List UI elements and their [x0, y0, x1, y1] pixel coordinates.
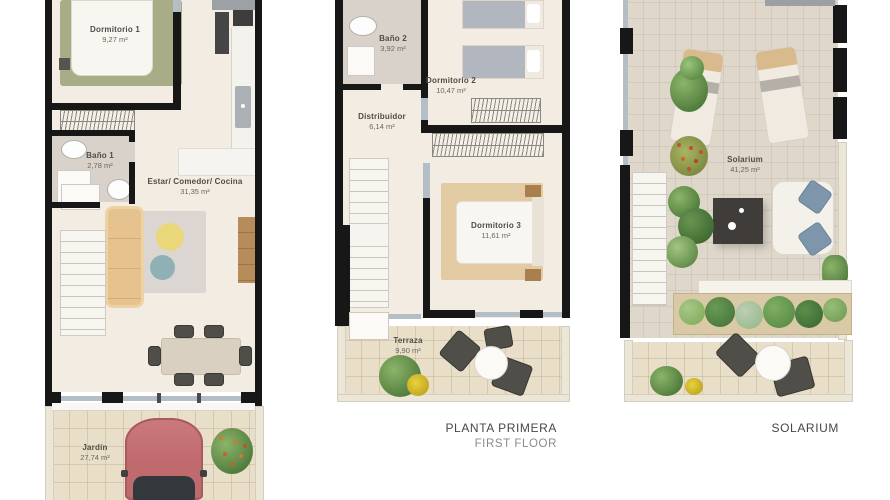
sol-stairs: [632, 172, 667, 306]
sol-table-dot: [739, 208, 744, 213]
gf-wardrobe: [60, 110, 135, 132]
gf-wall-right: [255, 0, 262, 398]
room-label-dormitorio2: Dormitorio 2 10,47 m²: [426, 76, 476, 95]
gf-dining-chair: [148, 346, 161, 366]
ff-terrace-wall-left: [337, 326, 346, 402]
gf-wall-bath-right: [129, 162, 135, 204]
gf-dining-chair: [239, 346, 252, 366]
gf-kitchen-sink-tap: [241, 104, 245, 108]
sol-lounger-cushion: [755, 46, 797, 70]
ff-terrace-wall-right: [561, 326, 570, 402]
ff-door-dorm2: [421, 98, 428, 120]
sol-bush: [666, 236, 698, 268]
gf-car-windshield: [133, 476, 195, 500]
sol-terrace-wall-bottom: [624, 394, 853, 402]
ff-wall-left-thick: [335, 225, 350, 326]
gf-stairs: [60, 230, 106, 336]
gf-kitchen-appliance: [233, 10, 253, 26]
first-floor-plan: Baño 2 3,92 m² Dormitorio 2 10,47 m² Dis…: [335, 0, 570, 400]
gf-garden-bush-flowers: [219, 436, 223, 440]
room-label-bano1: Baño 1 2,78 m²: [86, 151, 114, 170]
ff-bed-headboard: [532, 197, 544, 266]
sol-planter-plant: [823, 298, 847, 322]
ff-stairs-lower: [349, 246, 389, 308]
gf-dining-chair: [174, 325, 194, 338]
gf-bedroom-door: [173, 0, 181, 12]
ff-terrace-wall-bottom: [337, 394, 570, 402]
ff-shower: [347, 46, 375, 76]
gf-kitchen-appliance-tall: [215, 12, 229, 54]
gf-sliding-door: [123, 396, 241, 401]
ff-wall-right: [562, 0, 570, 318]
gf-kitchen-counter-top: [212, 0, 255, 10]
sol-planter-plant: [735, 301, 763, 329]
ff-bed-cover: [463, 1, 525, 28]
gf-window: [61, 396, 102, 401]
sol-wall-stairwell: [620, 165, 630, 338]
sol-terrace-table: [755, 345, 791, 381]
ff-bed-pillow: [527, 50, 540, 72]
first-floor-caption-title: PLANTA PRIMERA: [335, 421, 557, 437]
gf-garden-sill: [52, 403, 255, 411]
sol-wall-right-seg: [833, 48, 847, 92]
room-label-dormitorio3: Dormitorio 3 11,61 m²: [471, 221, 521, 240]
sol-planter-plant: [679, 299, 705, 325]
ff-terrace-table: [474, 346, 508, 380]
gf-wall-bath-top: [52, 130, 135, 136]
ff-bed-pillow: [527, 4, 540, 23]
room-label-terraza: Terraza 9,90 m²: [393, 336, 422, 355]
gf-sink: [107, 179, 131, 200]
floor-plans-canvas: Dormitorio 1 9,27 m² Baño 1 2,78 m² Esta…: [0, 0, 890, 500]
ff-nightstand: [525, 185, 541, 197]
gf-wall-bath-right: [129, 130, 135, 142]
sol-terrace-wall-right: [844, 340, 853, 402]
sol-table-dot: [728, 222, 736, 230]
gf-car-mirror: [200, 470, 207, 477]
gf-dining-table: [161, 338, 241, 375]
sol-terrace-wall-left: [624, 340, 633, 402]
sol-topiary-flowers: [677, 143, 681, 147]
gf-garden-bush: [211, 428, 253, 474]
gf-garden: Jardín 27,74 m²: [45, 406, 262, 500]
gf-pouf-blue: [150, 255, 175, 280]
sol-lounger-band: [760, 76, 801, 93]
gf-wall-bath-bottom: [52, 202, 100, 208]
ff-terrace-flower: [407, 374, 429, 396]
ff-stairs-upper: [349, 158, 389, 224]
sol-plant-palm-top: [680, 56, 704, 80]
gf-kitchen-island: [178, 148, 257, 176]
gf-car-mirror: [121, 470, 128, 477]
gf-wall-left: [45, 0, 52, 398]
room-label-dormitorio1: Dormitorio 1 9,27 m²: [90, 25, 140, 44]
solarium-plan: Solarium 41,25 m²: [620, 0, 855, 400]
ff-wardrobe-hall: [432, 133, 544, 157]
room-label-solarium: Solarium 41,25 m²: [727, 155, 763, 174]
gf-sofa: [105, 206, 144, 308]
gf-car: [125, 418, 203, 500]
gf-door-frame-tick: [197, 393, 201, 403]
ff-wall-bath-bottom: [343, 84, 381, 90]
sol-terrace-plant: [650, 366, 683, 396]
ff-toilet: [349, 16, 377, 36]
room-label-distribuidor: Distribuidor 6,14 m²: [358, 112, 406, 131]
gf-garden-wall-left: [45, 406, 54, 500]
gf-wall-bedroom: [173, 12, 181, 108]
ff-bed-cover: [463, 46, 525, 78]
sol-planter-plant: [763, 296, 795, 328]
sol-plant-topiary: [670, 136, 708, 176]
sol-lower-terrace: [624, 340, 851, 400]
sol-wall-right-seg: [833, 97, 847, 139]
ff-wall-bottom: [520, 310, 543, 318]
gf-nightstand: [59, 58, 70, 70]
gf-dining-chair: [174, 373, 194, 386]
ff-terrace-door: [475, 312, 520, 317]
ff-wall-under-dorm2: [421, 125, 562, 133]
room-label-bano2: Baño 2 3,92 m²: [379, 34, 407, 53]
ff-door-dorm3: [423, 163, 430, 198]
gf-dining-chair: [204, 373, 224, 386]
ff-wall-dorm3-left: [423, 198, 430, 310]
ff-terrace-window: [543, 312, 562, 317]
ff-single-bed: [462, 45, 544, 79]
gf-garden-wall-right: [255, 406, 264, 500]
first-floor-caption-subtitle: FIRST FLOOR: [335, 437, 557, 452]
ff-wall-bottom: [423, 310, 475, 318]
ground-floor-plan: Dormitorio 1 9,27 m² Baño 1 2,78 m² Esta…: [45, 0, 262, 500]
gf-door-frame-tick: [157, 393, 161, 403]
sol-privacy-screen: [765, 0, 835, 6]
sol-terrace-flower: [685, 378, 703, 395]
sol-wall-left-seg: [620, 130, 633, 156]
ff-terrace: Terraza 9,90 m²: [335, 326, 570, 400]
sol-island-table: [713, 198, 763, 244]
sol-planter-plant: [795, 300, 823, 328]
sol-wall-left-seg: [620, 28, 633, 54]
sol-planter-plant: [705, 297, 735, 327]
ff-nightstand: [525, 269, 541, 281]
ff-wall-left: [335, 0, 343, 225]
solarium-caption-title: SOLARIUM: [620, 421, 839, 437]
solarium-caption: SOLARIUM: [620, 421, 839, 437]
gf-toilet: [61, 140, 87, 159]
gf-dining-chair: [204, 325, 224, 338]
first-floor-caption: PLANTA PRIMERA FIRST FLOOR: [335, 421, 557, 452]
ff-single-bed: [462, 0, 544, 29]
sol-planter-box: [673, 293, 852, 335]
room-label-jardin: Jardín 27,74 m²: [80, 443, 110, 462]
room-label-living: Estar/ Comedor/ Cocina 31,35 m²: [147, 177, 242, 196]
sol-wall-right-seg: [833, 5, 847, 43]
ff-wardrobe-dorm2: [471, 98, 541, 123]
gf-pouf-yellow: [156, 223, 184, 251]
gf-wall-under-bedroom: [52, 103, 181, 110]
ff-terrace-storage: [349, 312, 389, 340]
gf-tv-cabinet: [238, 217, 255, 283]
